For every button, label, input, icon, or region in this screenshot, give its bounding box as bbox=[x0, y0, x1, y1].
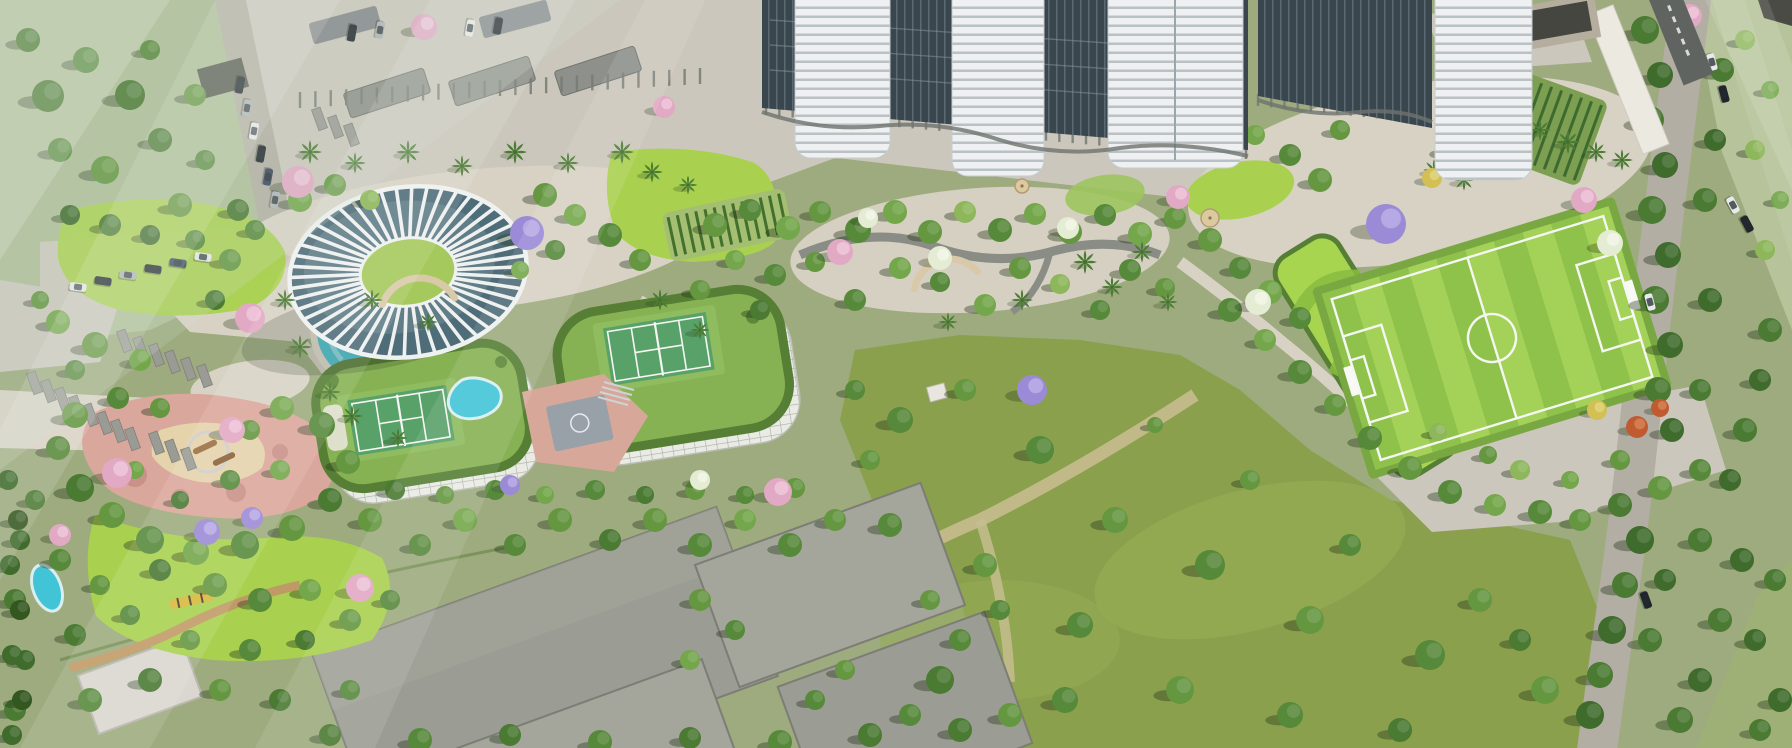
tree-highlight bbox=[1492, 496, 1503, 507]
palm-tree bbox=[1158, 292, 1177, 311]
tree-highlight bbox=[927, 222, 939, 234]
tree-highlight bbox=[1622, 574, 1636, 588]
tree-highlight bbox=[18, 602, 28, 612]
tree-highlight bbox=[868, 452, 878, 462]
blossom-highlight bbox=[113, 461, 128, 476]
tree-highlight bbox=[593, 482, 603, 492]
tree-highlight bbox=[1577, 511, 1588, 522]
tree-highlight bbox=[962, 381, 973, 392]
tent-peak bbox=[1208, 216, 1211, 219]
tower-balcony-stack bbox=[795, 0, 890, 158]
blossom-highlight bbox=[1175, 188, 1187, 200]
tree-highlight bbox=[1618, 452, 1628, 462]
tree-highlight bbox=[345, 452, 357, 464]
tree-highlight bbox=[1112, 509, 1126, 523]
tree-highlight bbox=[1752, 631, 1763, 642]
tree-highlight bbox=[1102, 206, 1113, 217]
blossom-highlight bbox=[837, 242, 850, 255]
tree-highlight bbox=[1407, 458, 1419, 470]
tree-highlight bbox=[217, 681, 228, 692]
tree-highlight bbox=[1317, 170, 1329, 182]
tree-highlight bbox=[1697, 381, 1708, 392]
palm-tree bbox=[503, 140, 527, 164]
tree-highlight bbox=[1518, 462, 1528, 472]
tree-highlight bbox=[20, 692, 30, 702]
tree-highlight bbox=[772, 266, 783, 277]
fence-pillar bbox=[699, 68, 701, 84]
tree-highlight bbox=[747, 201, 758, 212]
blossom-highlight bbox=[1595, 402, 1605, 412]
palm-tree bbox=[1585, 141, 1607, 163]
tree-highlight bbox=[697, 535, 709, 547]
tree-highlight bbox=[777, 732, 789, 744]
tree-highlight bbox=[1712, 131, 1723, 142]
tree-highlight bbox=[1777, 690, 1789, 702]
tree-highlight bbox=[1662, 571, 1673, 582]
tree-highlight bbox=[1568, 473, 1577, 482]
tree-highlight bbox=[1297, 309, 1308, 320]
tree-highlight bbox=[1537, 502, 1549, 514]
tree-highlight bbox=[327, 490, 339, 502]
tree-highlight bbox=[937, 669, 952, 684]
tree-highlight bbox=[1253, 127, 1263, 137]
tree-highlight bbox=[1477, 590, 1489, 602]
tree-highlight bbox=[698, 282, 708, 292]
tree-highlight bbox=[1017, 259, 1028, 270]
tree-highlight bbox=[787, 535, 799, 547]
tree-highlight bbox=[1542, 679, 1557, 694]
tree-highlight bbox=[1098, 302, 1108, 312]
tree-highlight bbox=[1367, 428, 1379, 440]
tree-highlight bbox=[98, 577, 108, 587]
tree-highlight bbox=[1262, 331, 1273, 342]
palm-tree bbox=[1011, 289, 1033, 311]
fence-pillar bbox=[560, 76, 562, 92]
tree-highlight bbox=[1177, 679, 1192, 694]
tree-highlight bbox=[1707, 290, 1719, 302]
tree-highlight bbox=[1647, 630, 1659, 642]
palm-tree bbox=[388, 428, 407, 447]
tree-highlight bbox=[10, 647, 20, 657]
tree-highlight bbox=[1248, 472, 1258, 482]
tree-highlight bbox=[1772, 571, 1783, 582]
tree-highlight bbox=[733, 252, 743, 262]
tree-highlight bbox=[1665, 244, 1679, 258]
tower-balcony-stack bbox=[952, 0, 1044, 176]
tree-highlight bbox=[843, 662, 853, 672]
palm-tree bbox=[641, 161, 663, 183]
tree-highlight bbox=[1332, 396, 1343, 407]
tree-highlight bbox=[417, 730, 429, 742]
blossom-highlight bbox=[1634, 418, 1645, 429]
tree-highlight bbox=[1037, 439, 1052, 454]
tree-highlight bbox=[637, 251, 648, 262]
tree-highlight bbox=[1657, 478, 1669, 490]
tower-balcony-stack bbox=[1435, 0, 1532, 180]
tree-highlight bbox=[962, 203, 973, 214]
tree-highlight bbox=[289, 517, 303, 531]
blossom-highlight bbox=[1381, 208, 1401, 228]
fence-pillar bbox=[683, 69, 685, 85]
tree-highlight bbox=[1447, 482, 1459, 494]
tree-highlight bbox=[1719, 60, 1731, 72]
tree-highlight bbox=[688, 652, 698, 662]
tree-highlight bbox=[1153, 418, 1161, 426]
tree-highlight bbox=[813, 692, 823, 702]
tree-highlight bbox=[712, 215, 724, 227]
tree-highlight bbox=[928, 592, 938, 602]
tent-peak bbox=[1020, 184, 1023, 187]
tree-highlight bbox=[1677, 709, 1691, 723]
tree-highlight bbox=[1237, 259, 1248, 270]
tree-highlight bbox=[1206, 553, 1222, 569]
fence-pillar bbox=[530, 78, 532, 94]
blossom-highlight bbox=[1581, 190, 1594, 203]
tree-highlight bbox=[832, 511, 843, 522]
palm-tree bbox=[1101, 276, 1123, 298]
tree-highlight bbox=[77, 477, 92, 492]
tree-highlight bbox=[1667, 334, 1681, 348]
tree-highlight bbox=[817, 203, 828, 214]
tree-highlight bbox=[957, 631, 968, 642]
tree-highlight bbox=[1702, 190, 1714, 202]
tree-highlight bbox=[1058, 276, 1068, 286]
tree-highlight bbox=[10, 727, 20, 737]
tree-highlight bbox=[1062, 689, 1076, 703]
fence-pillar bbox=[545, 77, 547, 93]
tree-highlight bbox=[1669, 420, 1681, 432]
tree-highlight bbox=[687, 729, 698, 740]
tree-highlight bbox=[867, 725, 879, 737]
tree-highlight bbox=[1739, 550, 1751, 562]
tree-highlight bbox=[507, 726, 518, 737]
tree-highlight bbox=[1517, 631, 1528, 642]
tree-highlight bbox=[853, 382, 863, 392]
tree-highlight bbox=[1617, 495, 1629, 507]
tree-highlight bbox=[957, 720, 969, 732]
blossom-highlight bbox=[775, 481, 789, 495]
tree-highlight bbox=[1742, 420, 1754, 432]
palm-tree bbox=[1611, 149, 1633, 171]
tree-highlight bbox=[1717, 610, 1729, 622]
blossom-highlight bbox=[1028, 378, 1043, 393]
tree-highlight bbox=[1436, 425, 1445, 434]
tree-highlight bbox=[1697, 461, 1708, 472]
tree-highlight bbox=[115, 389, 126, 400]
tree-highlight bbox=[607, 531, 618, 542]
tree-highlight bbox=[158, 400, 168, 410]
tree-highlight bbox=[697, 591, 708, 602]
tree-highlight bbox=[733, 622, 743, 632]
blossom-highlight bbox=[1607, 233, 1620, 246]
tree-highlight bbox=[109, 504, 123, 518]
tree-highlight bbox=[607, 225, 619, 237]
blossom-highlight bbox=[937, 249, 949, 261]
blossom-highlight bbox=[1065, 219, 1076, 230]
tree-highlight bbox=[23, 652, 33, 662]
tree-highlight bbox=[1397, 720, 1409, 732]
blossom-highlight bbox=[661, 98, 672, 109]
tree-highlight bbox=[887, 515, 899, 527]
tree-highlight bbox=[982, 555, 994, 567]
tree-highlight bbox=[1486, 448, 1495, 457]
blossom-highlight bbox=[57, 526, 68, 537]
tree-highlight bbox=[643, 488, 652, 497]
palm-tree bbox=[649, 289, 671, 311]
tree-highlight bbox=[743, 488, 752, 497]
tree-highlight bbox=[897, 259, 908, 270]
tree-highlight bbox=[785, 218, 797, 230]
tree-highlight bbox=[543, 488, 552, 497]
tree-highlight bbox=[742, 511, 753, 522]
tree-highlight bbox=[1587, 704, 1602, 719]
tree-highlight bbox=[307, 581, 318, 592]
tree-highlight bbox=[1609, 619, 1624, 634]
tree-highlight bbox=[938, 274, 948, 284]
tree-highlight bbox=[1767, 320, 1779, 332]
tree-highlight bbox=[1287, 146, 1298, 157]
tree-highlight bbox=[597, 732, 609, 744]
tree-highlight bbox=[982, 296, 993, 307]
tree-highlight bbox=[257, 590, 269, 602]
tree-highlight bbox=[1287, 704, 1301, 718]
tree-highlight bbox=[1338, 122, 1348, 132]
tree-highlight bbox=[1127, 261, 1138, 272]
palm-tree bbox=[1131, 241, 1153, 263]
tree-highlight bbox=[1207, 230, 1219, 242]
tree-highlight bbox=[897, 409, 911, 423]
palm-tree bbox=[1073, 250, 1097, 274]
tree-highlight bbox=[1727, 471, 1738, 482]
scene-canvas bbox=[0, 0, 1792, 748]
tree-highlight bbox=[1657, 64, 1671, 78]
tree-highlight bbox=[852, 291, 863, 302]
tree-highlight bbox=[1637, 529, 1652, 544]
tree-highlight bbox=[758, 302, 768, 312]
tree-highlight bbox=[1007, 705, 1019, 717]
tree-highlight bbox=[1163, 280, 1173, 290]
tree-highlight bbox=[1757, 721, 1768, 732]
tree-highlight bbox=[652, 510, 664, 522]
blossom-highlight bbox=[1658, 401, 1667, 410]
blossom-highlight bbox=[508, 477, 518, 487]
tree-highlight bbox=[247, 641, 258, 652]
tree-highlight bbox=[997, 220, 1009, 232]
blossom-highlight bbox=[1255, 292, 1268, 305]
tree-highlight bbox=[512, 536, 523, 547]
tree-highlight bbox=[1655, 379, 1669, 393]
tree-highlight bbox=[1642, 19, 1657, 34]
tree-highlight bbox=[57, 551, 68, 562]
tree-highlight bbox=[892, 202, 904, 214]
tree-highlight bbox=[1032, 205, 1043, 216]
tree-highlight bbox=[1137, 224, 1149, 236]
tree-highlight bbox=[793, 480, 803, 490]
aerial-render bbox=[0, 0, 1792, 748]
fence-pillar bbox=[576, 75, 578, 91]
tree-highlight bbox=[1077, 614, 1091, 628]
tree-highlight bbox=[1347, 536, 1358, 547]
tree-highlight bbox=[1307, 609, 1322, 624]
blossom-highlight bbox=[866, 210, 876, 220]
tree-highlight bbox=[1267, 282, 1279, 294]
tree-highlight bbox=[907, 706, 918, 717]
blossom-highlight bbox=[698, 472, 708, 482]
tree-highlight bbox=[1757, 371, 1768, 382]
tree-highlight bbox=[1426, 643, 1442, 659]
palm-tree bbox=[341, 405, 363, 427]
tree-highlight bbox=[1662, 154, 1676, 168]
tree-highlight bbox=[1763, 242, 1773, 252]
tree-highlight bbox=[133, 463, 142, 472]
tree-highlight bbox=[1172, 209, 1183, 220]
tree-highlight bbox=[998, 602, 1008, 612]
tree-highlight bbox=[557, 510, 569, 522]
tree-highlight bbox=[1649, 199, 1664, 214]
palm-tree bbox=[1556, 130, 1580, 154]
tree-highlight bbox=[1297, 362, 1309, 374]
tree-highlight bbox=[1697, 530, 1709, 542]
tree-highlight bbox=[1697, 670, 1709, 682]
fence-pillar bbox=[591, 74, 593, 90]
tree-highlight bbox=[1597, 664, 1611, 678]
